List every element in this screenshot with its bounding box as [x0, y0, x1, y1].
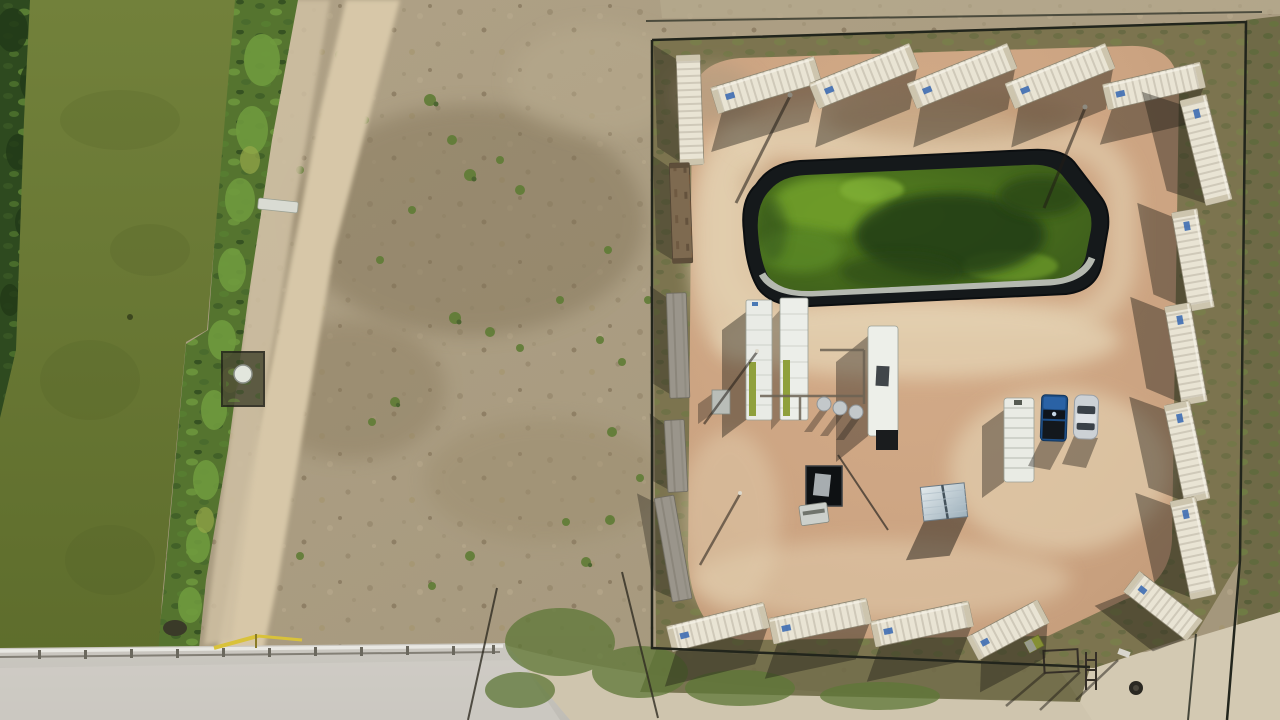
green-tank [749, 362, 756, 416]
small-utility-trailer [799, 502, 830, 526]
pickup-truck [1040, 395, 1068, 442]
truck-bed [1042, 421, 1065, 440]
container-left-weathered-1 [650, 285, 690, 399]
pit-cover [813, 473, 831, 497]
wellhead-enclosure [222, 352, 264, 406]
black-skid [876, 430, 898, 450]
bridge-deck-highlight [0, 660, 560, 720]
truck-hood [1043, 397, 1065, 410]
water-debris [127, 314, 133, 320]
blue-fitting [752, 302, 758, 306]
container-left-weathered-2 [650, 412, 688, 494]
car-rear-window [1077, 423, 1095, 431]
small-tank [849, 405, 863, 419]
cellar-pit [806, 466, 842, 506]
small-tank [817, 397, 831, 411]
small-tank [833, 401, 847, 415]
long-equipment-trailer [868, 326, 898, 450]
trailer-vent [1014, 400, 1022, 405]
container-top-0 [654, 44, 704, 167]
culvert-opening [163, 620, 187, 636]
car-windshield [1077, 406, 1095, 415]
car-roof [1076, 414, 1096, 424]
retention-pond [743, 150, 1108, 306]
container-left-rust [653, 155, 693, 264]
wellhead-tank [234, 365, 252, 383]
silver-sedan [1073, 395, 1099, 440]
equipment-trailer-2 [780, 298, 808, 420]
green-tank [783, 360, 790, 416]
aerial-photo: Top-down drone photo of a fenced oil and… [0, 0, 1280, 720]
roof-vent [875, 366, 889, 387]
aerial-photo-canvas: Top-down drone photo of a fenced oil and… [0, 0, 1280, 720]
dead-brush-patch [425, 418, 665, 542]
trailer-shadow [722, 312, 746, 438]
tire-hub [1133, 685, 1139, 691]
